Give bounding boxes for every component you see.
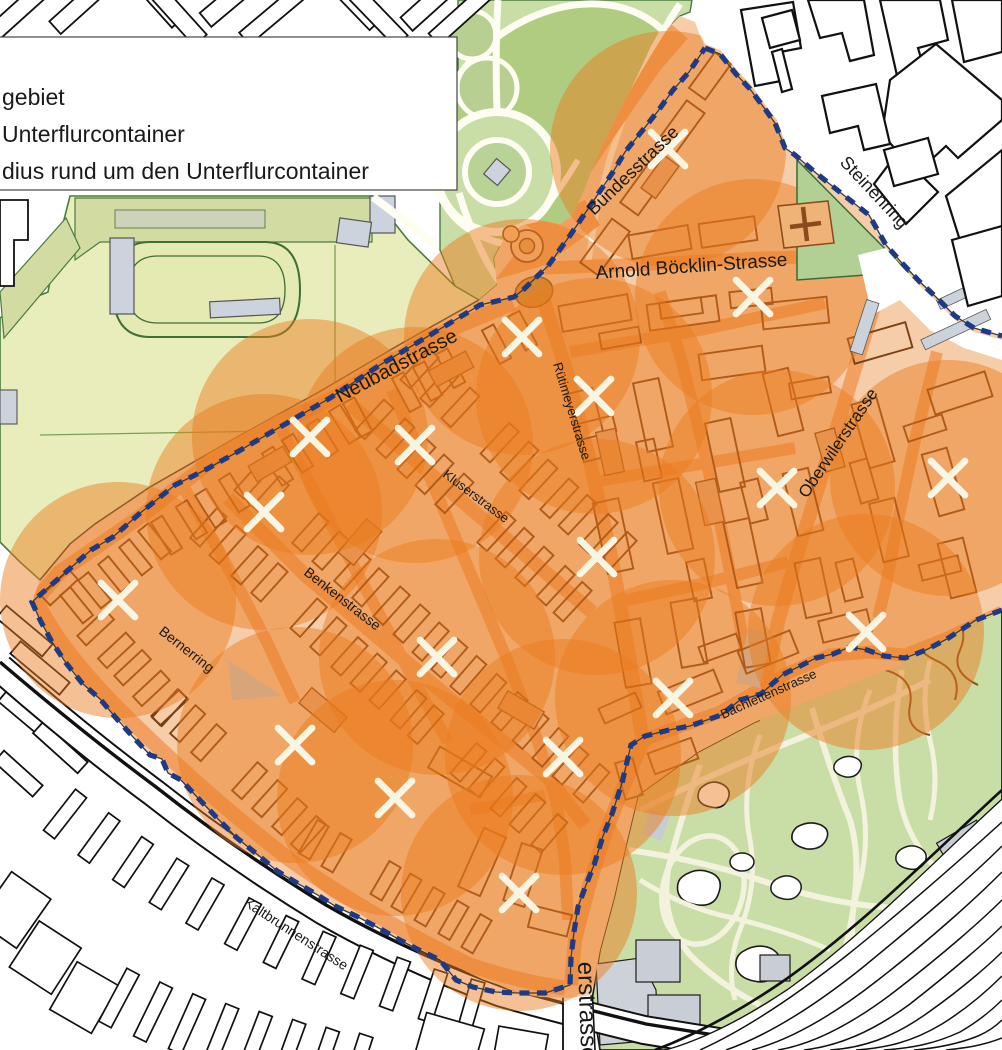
svg-text:erstrasse: erstrasse [572,961,602,1050]
svg-text:Unterflurcontainer: Unterflurcontainer [2,121,185,147]
svg-text:dius rund um den Unterflurcont: dius rund um den Unterflurcontainer [2,158,369,184]
svg-text:gebiet: gebiet [2,84,65,110]
